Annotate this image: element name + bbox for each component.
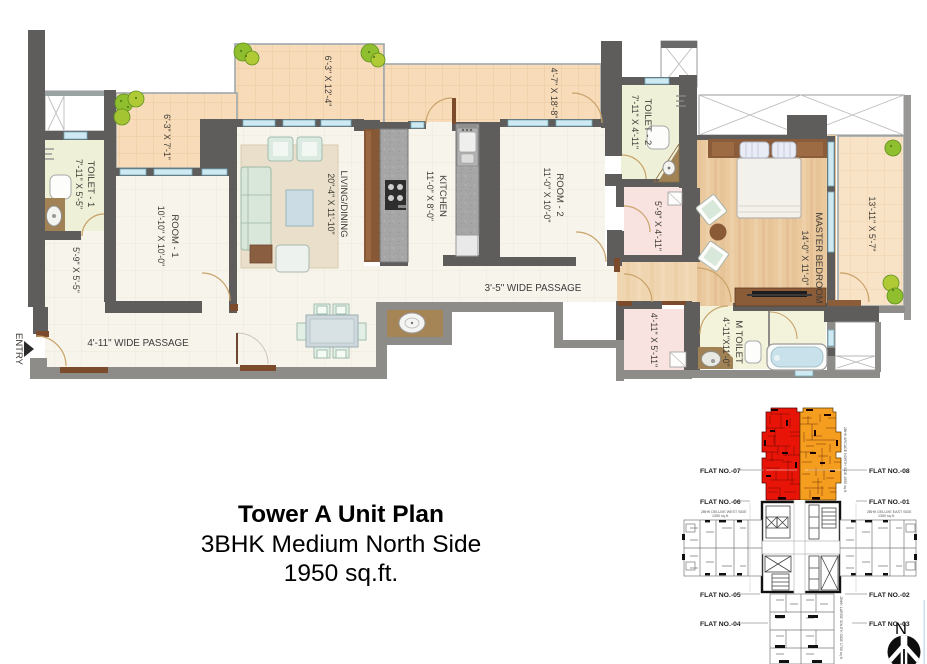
- svg-text:FLAT NO.-02: FLAT NO.-02: [869, 592, 910, 599]
- svg-text:FLAT NO.-04: FLAT NO.-04: [700, 621, 741, 628]
- svg-text:FLAT NO.-01: FLAT NO.-01: [869, 499, 910, 506]
- svg-text:FLAT NO.-08: FLAT NO.-08: [869, 468, 910, 475]
- svg-text:6'-3" X 12'-4": 6'-3" X 12'-4": [323, 56, 333, 107]
- svg-text:5'-9" X 5'-5": 5'-9" X 5'-5": [71, 247, 81, 293]
- svg-text:N: N: [895, 620, 907, 638]
- svg-text:TOILET - 2: TOILET - 2: [642, 99, 653, 146]
- svg-text:13'-11" X 5'-7": 13'-11" X 5'-7": [867, 197, 877, 252]
- svg-text:6'-3" X 7'-1": 6'-3" X 7'-1": [162, 114, 172, 160]
- svg-text:4'-11" WIDE PASSAGE: 4'-11" WIDE PASSAGE: [87, 338, 189, 349]
- svg-text:10'-10" X 10'-0": 10'-10" X 10'-0": [156, 206, 166, 266]
- svg-text:11'-0" X 8'-0": 11'-0" X 8'-0": [425, 171, 435, 221]
- svg-text:2BHK LARGE SOUTH SIDE 1700 sq.: 2BHK LARGE SOUTH SIDE 1700 sq.ft.: [839, 596, 843, 659]
- svg-text:4'-11" X 5'-11": 4'-11" X 5'-11": [649, 313, 659, 367]
- svg-text:ENTRY: ENTRY: [13, 333, 24, 366]
- svg-text:5'-9" X 4'-11": 5'-9" X 4'-11": [653, 201, 663, 251]
- svg-text:2BHK ARCADE NORTH SIDE 1950 sq: 2BHK ARCADE NORTH SIDE 1950 sq.ft.: [843, 427, 847, 493]
- svg-text:Tower A Unit Plan: Tower A Unit Plan: [238, 501, 444, 528]
- svg-text:MASTER BEDROOM: MASTER BEDROOM: [813, 212, 824, 303]
- svg-text:LIVING/DINING: LIVING/DINING: [338, 170, 349, 237]
- svg-text:1950 sq.ft.: 1950 sq.ft.: [284, 560, 398, 587]
- svg-text:1350 sq.ft.: 1350 sq.ft.: [878, 514, 895, 518]
- svg-text:FLAT NO.-05: FLAT NO.-05: [700, 592, 741, 599]
- svg-text:ROOM - 1: ROOM - 1: [169, 214, 180, 257]
- svg-text:3'-5" WIDE PASSAGE: 3'-5" WIDE PASSAGE: [485, 283, 582, 294]
- svg-text:14'-0" X 11'-0": 14'-0" X 11'-0": [800, 231, 810, 286]
- svg-text:FLAT NO.-06: FLAT NO.-06: [700, 499, 741, 506]
- svg-text:11'-0" X 10'-0": 11'-0" X 10'-0": [542, 168, 552, 223]
- svg-text:4'-11"X11'-0": 4'-11"X11'-0": [721, 317, 731, 366]
- svg-text:4'-7" X 18'-8": 4'-7" X 18'-8": [549, 68, 559, 119]
- svg-text:KITCHEN: KITCHEN: [437, 175, 448, 217]
- svg-text:ROOM - 2: ROOM - 2: [554, 173, 565, 216]
- svg-text:TOILET - 1: TOILET - 1: [85, 161, 96, 208]
- svg-text:1350 sq.ft.: 1350 sq.ft.: [712, 514, 729, 518]
- svg-text:7'-11" X 5'-5": 7'-11" X 5'-5": [74, 159, 84, 209]
- svg-text:3BHK Medium North Side: 3BHK Medium North Side: [201, 531, 482, 558]
- svg-text:7'-11" X 4'-11": 7'-11" X 4'-11": [630, 95, 640, 149]
- svg-text:M TOILET: M TOILET: [733, 320, 744, 364]
- svg-text:FLAT NO.-07: FLAT NO.-07: [700, 468, 741, 475]
- svg-text:20"-4" X 11'-10": 20"-4" X 11'-10": [326, 173, 336, 234]
